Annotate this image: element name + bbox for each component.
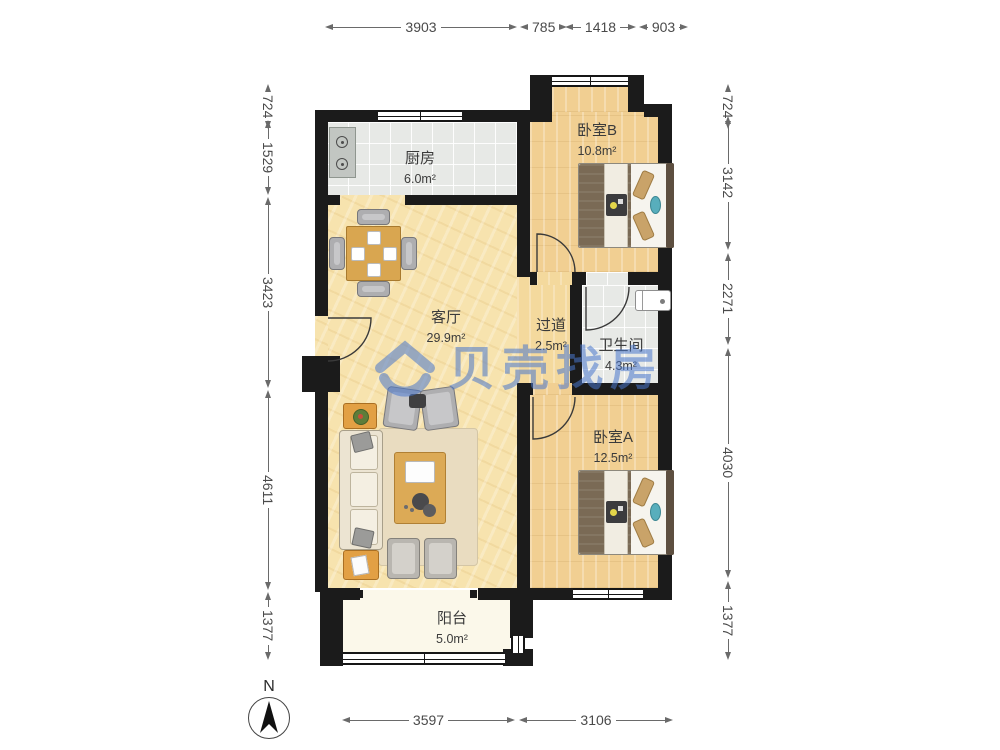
bedroom-b-bay-window xyxy=(552,75,628,87)
bed-bedroom-a xyxy=(578,470,674,555)
wall xyxy=(510,592,533,638)
entry-threshold xyxy=(315,316,328,360)
compass-north-label: N xyxy=(246,678,292,696)
sofa xyxy=(339,430,383,550)
dining-chair xyxy=(401,237,417,270)
balcony-threshold xyxy=(360,590,478,600)
dim-bottom-1: 3597 xyxy=(342,713,515,727)
room-label-bathroom: 卫生间4.3m² xyxy=(581,334,661,375)
armchair xyxy=(382,386,422,431)
bathroom-door-threshold xyxy=(586,272,628,285)
dining-table xyxy=(346,226,401,281)
dim-left-3: 3423 xyxy=(260,197,276,388)
wall xyxy=(517,383,530,592)
wall xyxy=(572,383,672,395)
ottoman xyxy=(387,538,420,579)
stove xyxy=(329,127,356,178)
dim-left-1: 724 xyxy=(260,84,276,118)
wall xyxy=(315,110,328,316)
dining-chair xyxy=(357,281,390,297)
room-label-bedroom-a: 卧室A12.5m² xyxy=(573,426,653,467)
room-label-bedroom-b: 卧室B10.8m² xyxy=(557,119,637,160)
dim-right-2: 3142 xyxy=(720,116,736,250)
ottoman xyxy=(424,538,457,579)
wall xyxy=(628,272,672,285)
wall xyxy=(302,356,340,392)
bed-bedroom-b xyxy=(578,163,674,248)
floorplan-canvas: 厨房6.0m² 卧室B10.8m² 客厅29.9m² 过道2.5m² 卫生间4.… xyxy=(0,0,1000,750)
book-table xyxy=(343,550,379,580)
dim-bottom-2: 3106 xyxy=(519,713,673,727)
dining-chair xyxy=(329,237,345,270)
dim-right-5: 1377 xyxy=(720,581,736,660)
kitchen-window xyxy=(378,110,462,122)
dim-right-3: 2271 xyxy=(720,253,736,345)
sliding-door-mark xyxy=(470,590,477,598)
plant-table xyxy=(343,403,377,429)
wall xyxy=(530,588,573,600)
room-label-balcony: 阳台5.0m² xyxy=(412,607,492,648)
dining-chair xyxy=(357,209,390,225)
dim-top-1: 3903 xyxy=(325,20,517,34)
side-stool xyxy=(409,394,426,408)
wall xyxy=(315,360,328,592)
room-label-hallway: 过道2.5m² xyxy=(511,314,591,355)
sliding-door-mark xyxy=(356,590,363,598)
balcony-window xyxy=(343,652,505,665)
wall xyxy=(320,592,343,654)
wall xyxy=(572,272,586,285)
wall xyxy=(517,383,533,395)
wall xyxy=(643,588,672,600)
dim-top-3: 1418 xyxy=(565,20,636,34)
dim-left-4: 4611 xyxy=(260,390,276,590)
room-label-living: 客厅29.9m² xyxy=(406,306,486,347)
dim-left-5: 1377 xyxy=(260,592,276,660)
compass: N xyxy=(246,678,292,739)
wall xyxy=(530,272,537,285)
bedroom-b-bay-floor xyxy=(552,87,628,112)
wall xyxy=(628,75,644,112)
bedroom-b-door-threshold xyxy=(536,272,572,285)
bedroom-a-window xyxy=(573,588,643,600)
wall xyxy=(320,649,343,666)
dim-right-4: 4030 xyxy=(720,348,736,578)
wall xyxy=(530,75,552,112)
compass-needle-icon xyxy=(249,698,289,738)
coffee-table xyxy=(394,452,446,524)
balcony-side-window xyxy=(511,636,525,653)
dim-top-4: 903 xyxy=(639,20,688,34)
armchair xyxy=(419,386,459,431)
wall xyxy=(327,195,340,205)
wall xyxy=(517,110,530,277)
washing-machine xyxy=(635,290,671,311)
dim-top-2: 785 xyxy=(520,20,562,34)
dim-left-2: 1529 xyxy=(260,120,276,195)
wall xyxy=(405,195,517,205)
dim-right-1: 724 xyxy=(720,84,736,114)
room-label-kitchen: 厨房6.0m² xyxy=(380,147,460,188)
bedroom-a-door-threshold xyxy=(533,383,572,395)
compass-circle xyxy=(248,697,290,739)
